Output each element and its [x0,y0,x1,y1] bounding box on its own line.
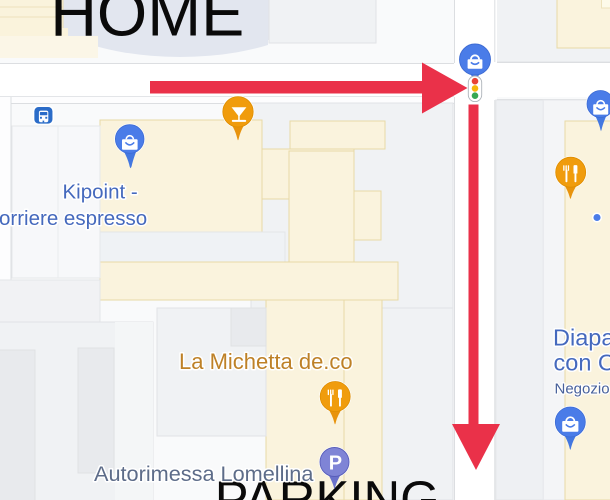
svg-text:con Cam: con Cam [554,350,610,376]
svg-text:orriere espresso: orriere espresso [0,207,147,230]
svg-text:P: P [329,453,342,475]
svg-text:La Michetta de.co: La Michetta de.co [179,349,353,374]
svg-text:Diapason: Diapason [553,325,610,351]
svg-text:Kipoint -: Kipoint - [63,181,138,204]
svg-text:Autorimessa Lomellina: Autorimessa Lomellina [94,461,314,486]
svg-text:Negozio di: Negozio di [555,381,610,398]
svg-text:HOME: HOME [50,0,244,50]
